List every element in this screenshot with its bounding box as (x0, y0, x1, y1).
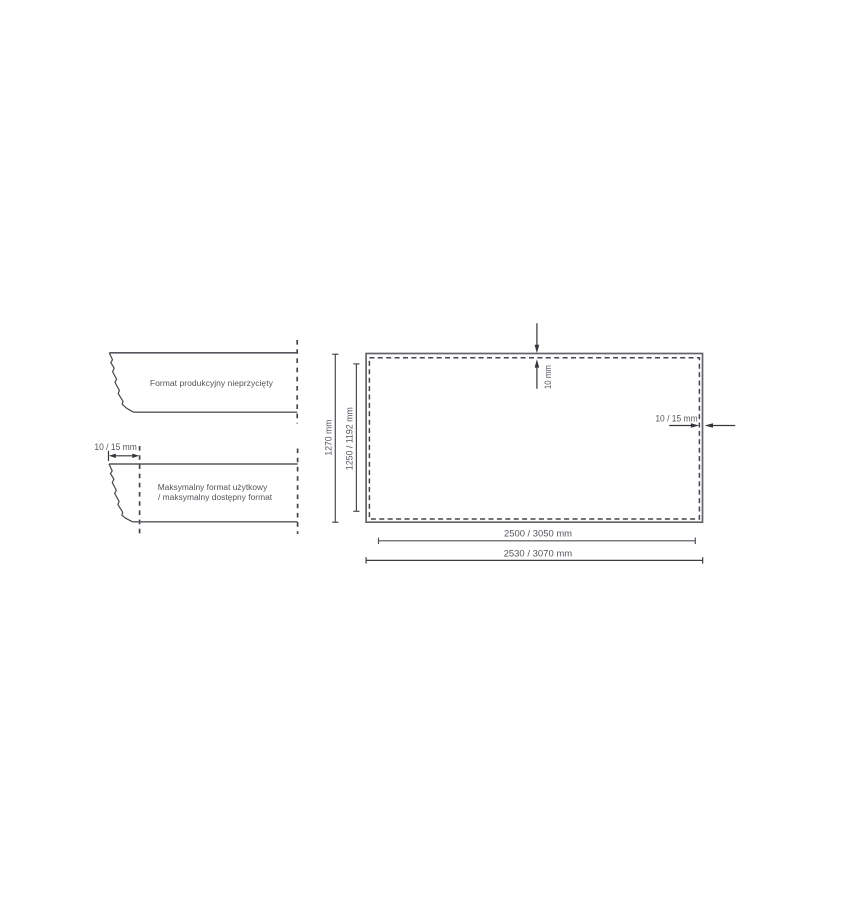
svg-text:Maksymalny format użytkowy: Maksymalny format użytkowy (158, 482, 268, 492)
svg-text:1270 mm: 1270 mm (323, 419, 333, 455)
svg-text:/ maksymalny dostępny format: / maksymalny dostępny format (158, 492, 273, 502)
svg-text:2530 / 3070 mm: 2530 / 3070 mm (504, 548, 573, 558)
svg-text:1250 / 1192 mm: 1250 / 1192 mm (345, 407, 355, 470)
svg-text:2500 / 3050 mm: 2500 / 3050 mm (504, 528, 572, 538)
svg-text:10 mm: 10 mm (543, 365, 553, 389)
svg-text:Format produkcyjny nieprzycięt: Format produkcyjny nieprzycięty (150, 378, 274, 388)
svg-text:10 / 15 mm: 10 / 15 mm (94, 442, 137, 452)
svg-text:10 / 15 mm: 10 / 15 mm (655, 414, 698, 424)
